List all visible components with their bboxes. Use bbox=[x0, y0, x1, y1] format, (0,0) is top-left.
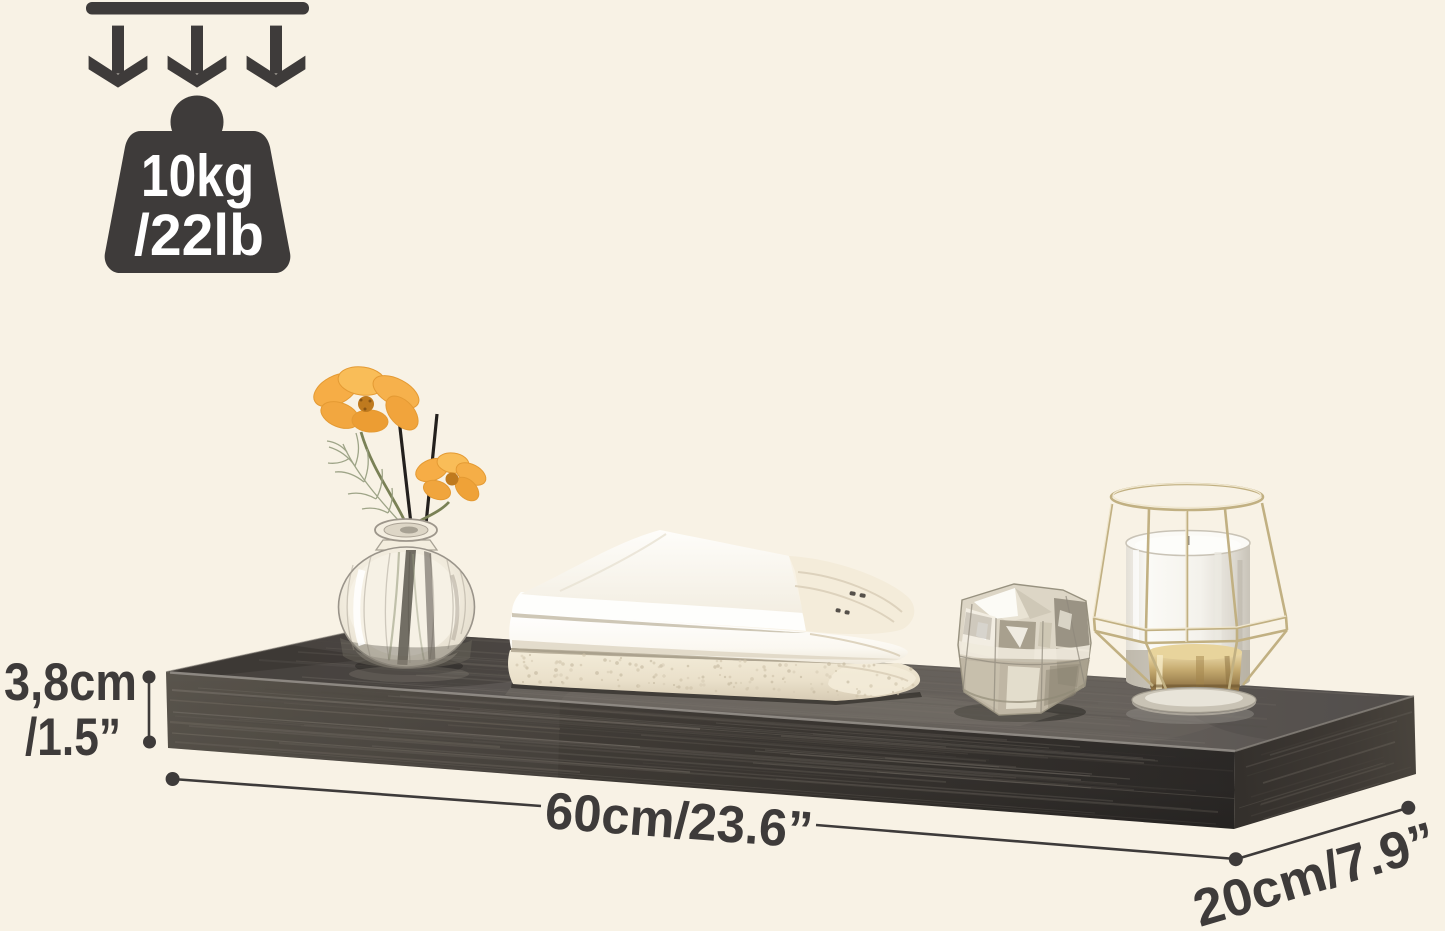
svg-text:/22lb: /22lb bbox=[134, 203, 264, 268]
svg-text:10kg: 10kg bbox=[141, 143, 254, 209]
svg-text:/1.5”: /1.5” bbox=[25, 708, 121, 767]
svg-text:3,8cm: 3,8cm bbox=[4, 653, 137, 712]
